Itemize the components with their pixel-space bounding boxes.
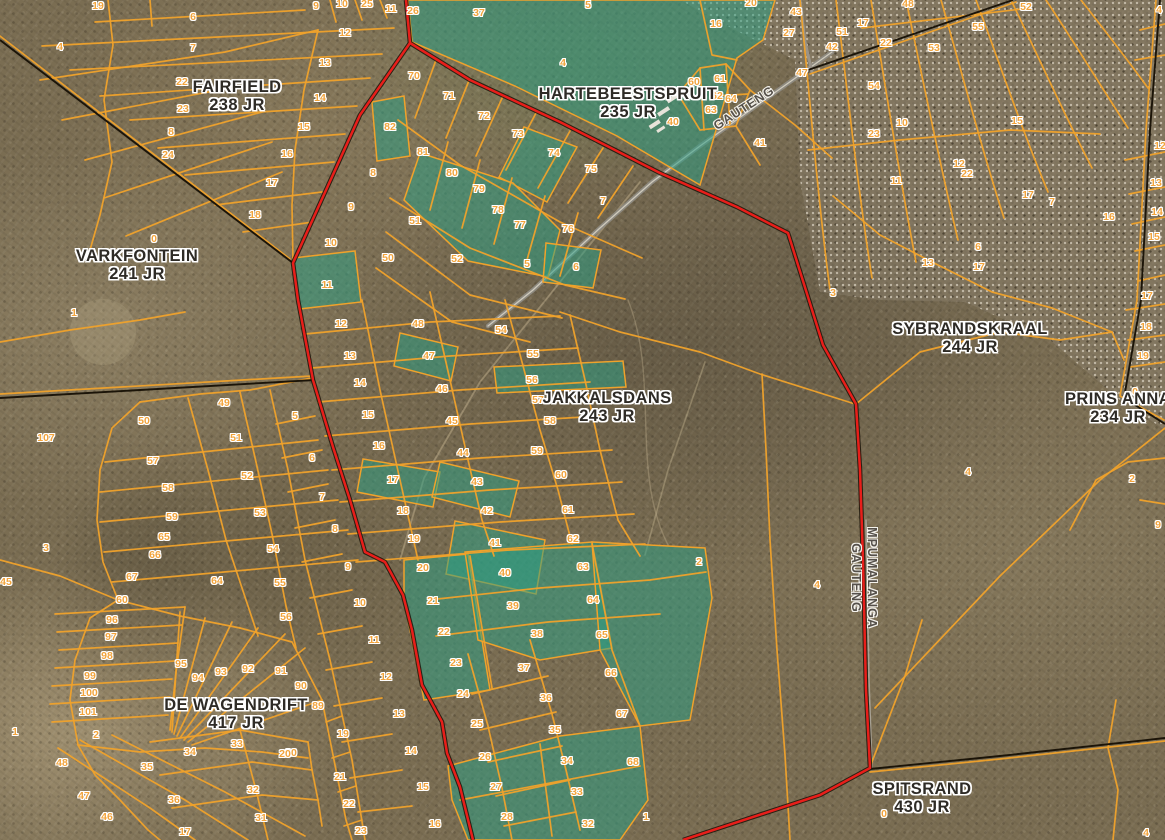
pivot-field [70, 299, 136, 365]
map-canvas[interactable]: 1964722238240110734591025112612131415161… [0, 0, 1165, 840]
parcel-boundaries [0, 0, 1165, 840]
cadastral-overlay [0, 0, 1165, 840]
